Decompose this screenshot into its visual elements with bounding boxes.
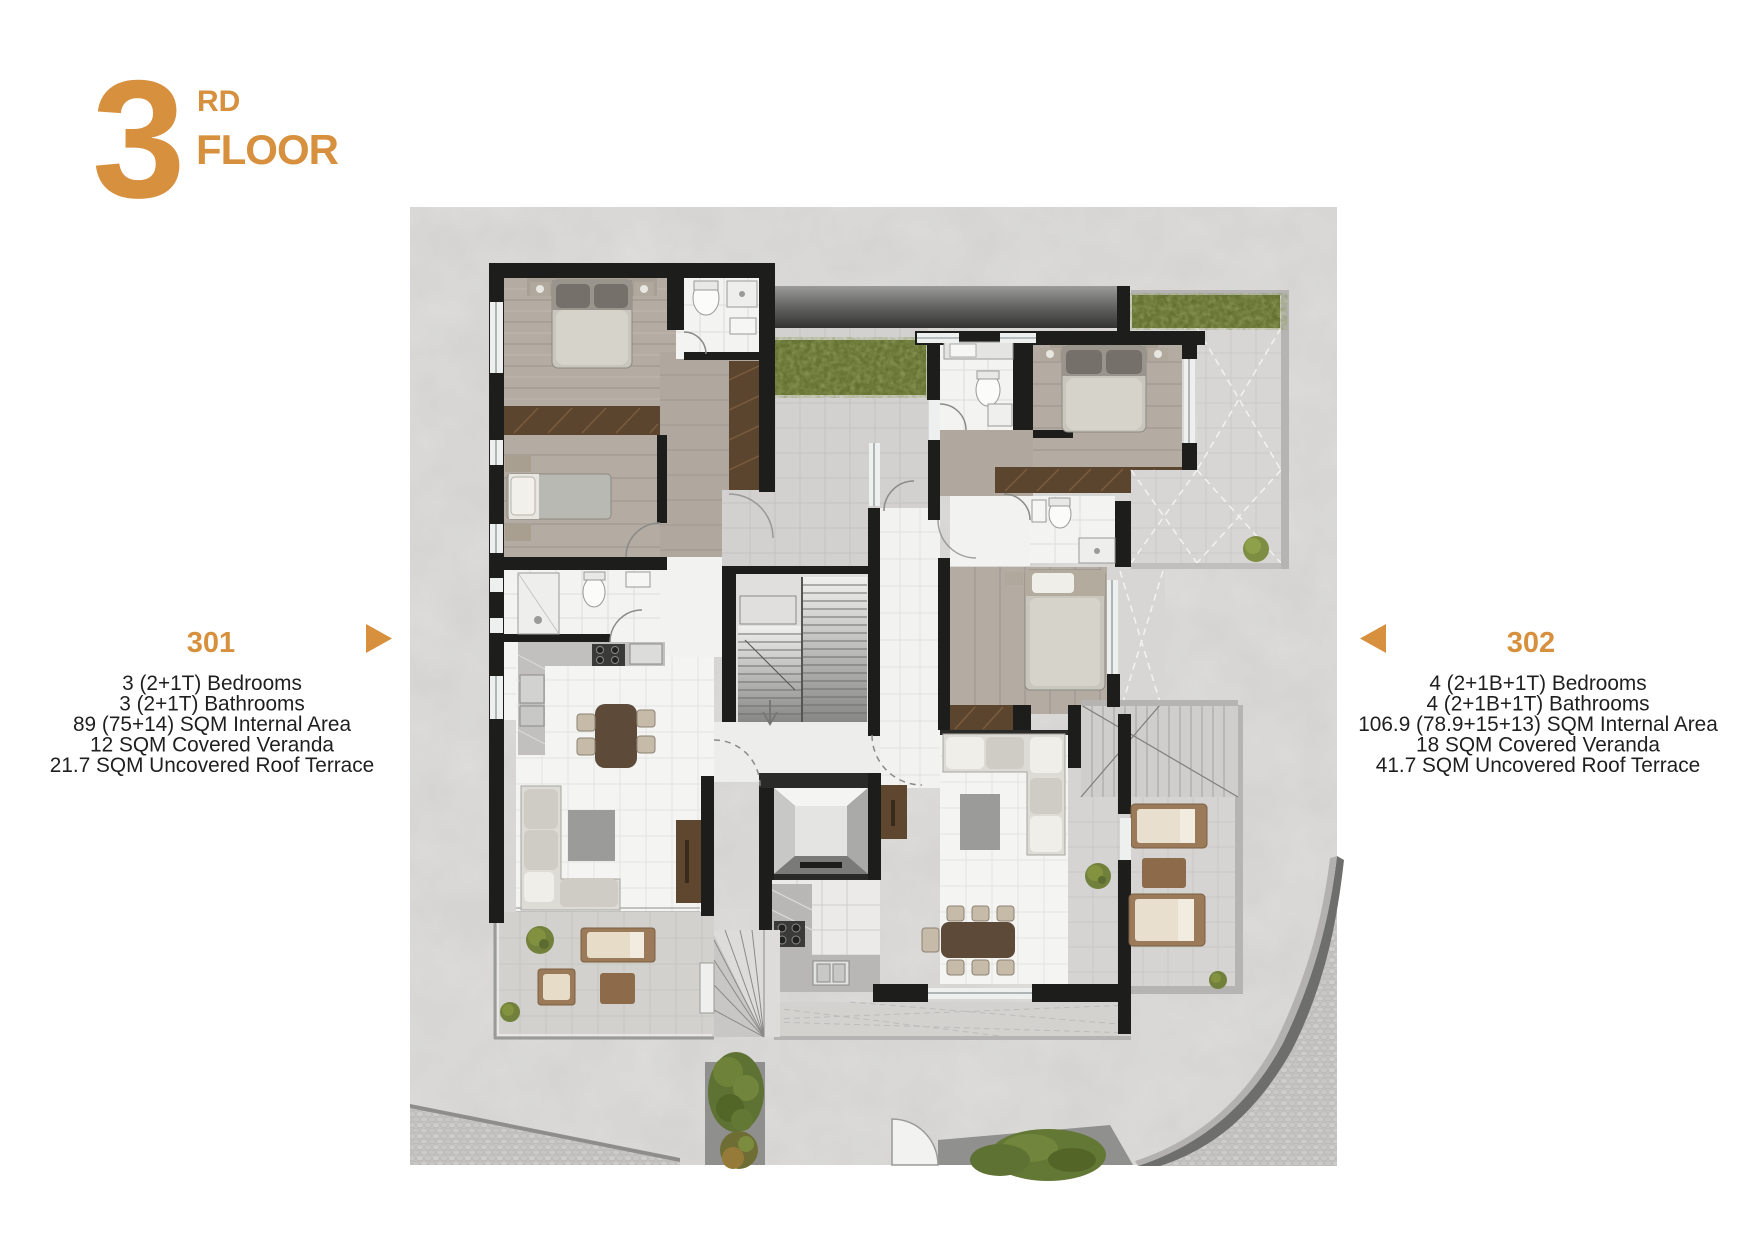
svg-text:301: 301	[187, 627, 235, 659]
svg-text:21.7 SQM Uncovered Roof Terrac: 21.7 SQM Uncovered Roof Terrace	[50, 754, 374, 777]
svg-text:RD: RD	[197, 85, 240, 118]
svg-text:302: 302	[1507, 627, 1555, 659]
svg-text:3: 3	[92, 45, 185, 233]
svg-text:41.7 SQM Uncovered Roof Terrac: 41.7 SQM Uncovered Roof Terrace	[1376, 754, 1700, 777]
svg-text:FLOOR: FLOOR	[196, 126, 339, 173]
